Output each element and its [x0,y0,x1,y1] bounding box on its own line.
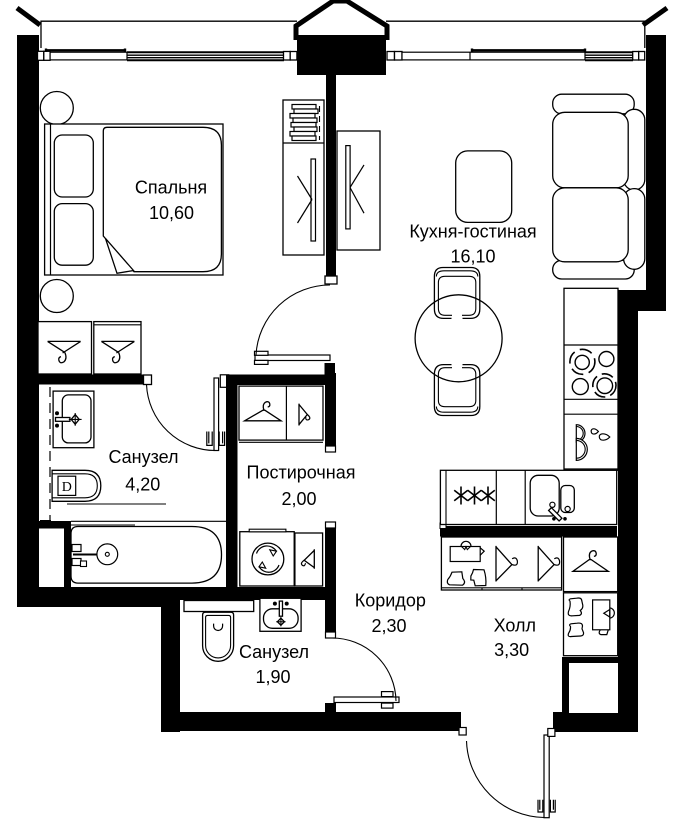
svg-text:Санузел: Санузел [108,447,178,467]
svg-text:Холл: Холл [494,616,536,636]
svg-text:Постирочная: Постирочная [247,463,356,483]
svg-text:16,10: 16,10 [450,247,495,267]
svg-text:Коридор: Коридор [355,591,426,611]
svg-text:3,30: 3,30 [494,640,529,660]
svg-text:4,20: 4,20 [125,475,160,495]
svg-text:D: D [62,480,72,495]
svg-text:10,60: 10,60 [149,203,194,223]
svg-text:2,00: 2,00 [281,489,316,509]
svg-text:Кухня-гостиная: Кухня-гостиная [409,222,536,242]
svg-text:1,90: 1,90 [255,667,290,687]
svg-text:Спальня: Спальня [135,178,207,198]
svg-text:2,30: 2,30 [371,616,406,636]
svg-text:Санузел: Санузел [239,642,309,662]
